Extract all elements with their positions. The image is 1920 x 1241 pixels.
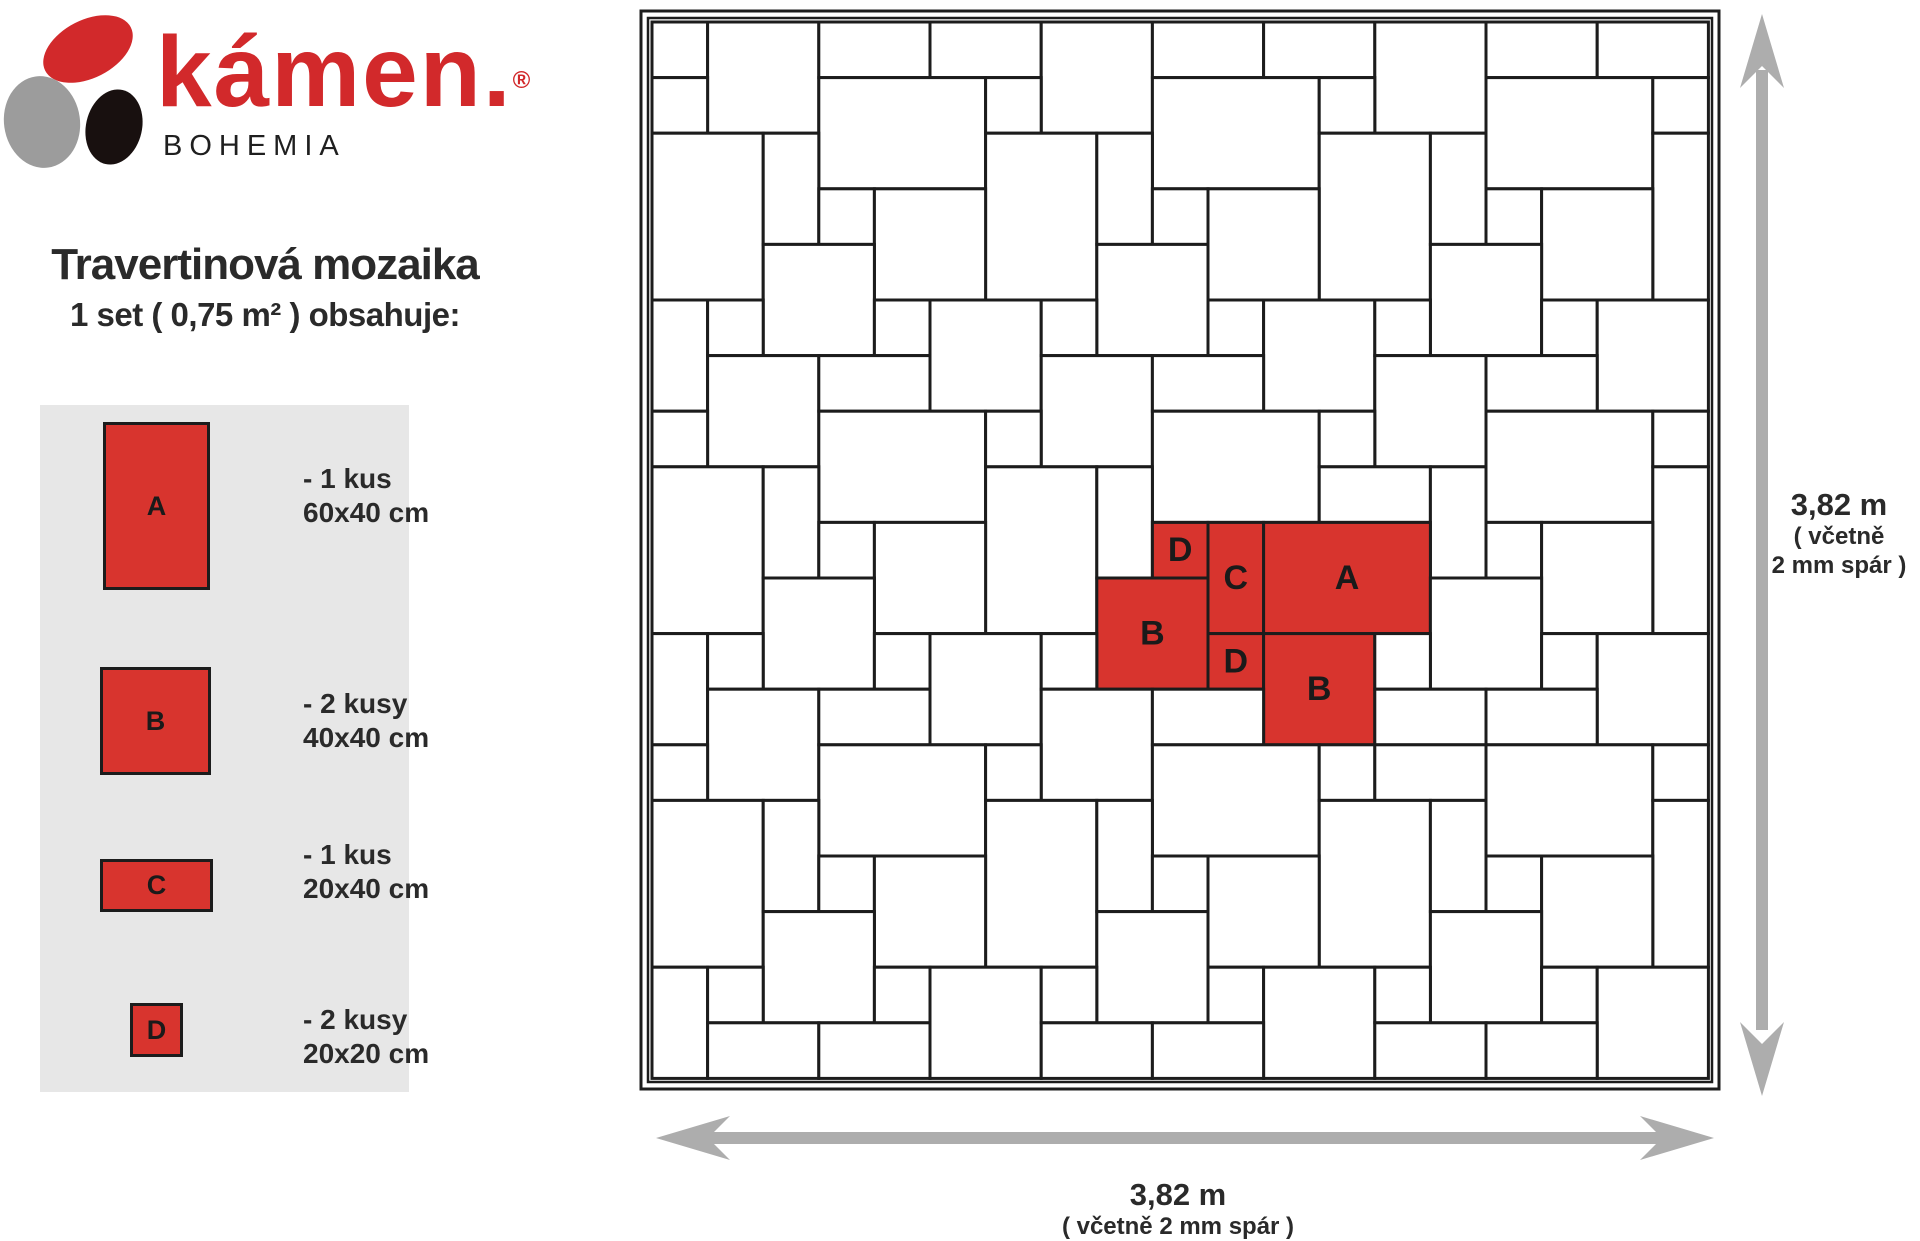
mosaic-tile [874, 634, 930, 690]
mosaic-tile [1542, 634, 1598, 690]
mosaic-tile [1486, 522, 1542, 578]
bottom-dimension-note: ( včetně 2 mm spár ) [978, 1212, 1378, 1241]
mosaic-tile [763, 912, 874, 1023]
mosaic-tile [1041, 689, 1152, 800]
horizontal-dimension-arrow [656, 1116, 1714, 1160]
mosaic-tile [652, 300, 708, 411]
mosaic-tile [819, 522, 875, 578]
legend-tile-d: D [130, 1003, 183, 1057]
legend-tile-c: C [100, 859, 213, 912]
logo-wordmark: kámen.® [156, 22, 530, 131]
logo-subbrand: BOHEMIA [163, 130, 346, 163]
mosaic-tile [1486, 745, 1653, 856]
mosaic-tile [874, 967, 930, 1023]
mosaic-tile [819, 356, 930, 412]
mosaic-tile [652, 78, 708, 134]
mosaic-tile [652, 133, 763, 300]
mosaic-tile [1486, 1023, 1597, 1079]
mosaic-tile [1041, 300, 1097, 356]
mosaic-tile [1653, 411, 1709, 467]
legend-item-d-qty: - 2 kusy [303, 1003, 429, 1037]
mosaic-tile [819, 1023, 930, 1079]
mosaic-tile [652, 411, 708, 467]
mosaic-tile [1542, 189, 1653, 300]
mosaic-tile [708, 634, 764, 690]
legend-item-b-qty: - 2 kusy [303, 687, 429, 721]
mosaic-tile [763, 800, 819, 911]
mosaic-tile [1152, 356, 1263, 412]
mosaic-tile [1653, 78, 1709, 134]
mosaic-tile-label: B [1307, 670, 1332, 708]
mosaic-tile [819, 78, 986, 189]
mosaic-tile-label: D [1224, 642, 1249, 680]
mosaic-tile [1375, 1023, 1486, 1079]
legend-tile-b: B [100, 667, 211, 775]
right-dimension-value: 3,82 m [1759, 488, 1919, 522]
mosaic-tile [819, 689, 930, 745]
logo-stones [0, 1, 150, 172]
mosaic-tile [652, 467, 763, 634]
mosaic-tile [1430, 244, 1541, 355]
mosaic-tile [1486, 411, 1653, 522]
mosaic-tile [1597, 967, 1708, 1078]
right-dimension-label: 3,82 m ( včetně 2 mm spár ) [1759, 488, 1919, 580]
mosaic-tile [763, 244, 874, 355]
mosaic-tile [763, 467, 819, 578]
mosaic-tile [1152, 22, 1263, 78]
mosaic-tile [1319, 745, 1375, 801]
right-dimension-note-2: 2 mm spár ) [1759, 551, 1919, 580]
mosaic-tile [1486, 78, 1653, 189]
registered-trademark-icon: ® [513, 67, 531, 94]
mosaic-tile [1097, 244, 1208, 355]
mosaic-tile [1041, 634, 1097, 690]
mosaic-tile [652, 634, 708, 745]
mosaic-tile [1486, 189, 1542, 245]
mosaic-tile [874, 522, 985, 633]
mosaic-tile [1041, 356, 1152, 467]
mosaic-tile [1319, 133, 1430, 300]
mosaic-tile [1097, 912, 1208, 1023]
mosaic-tile [1264, 300, 1375, 411]
legend-item-b-size: 40x40 cm [303, 721, 429, 755]
mosaic-tile [986, 78, 1042, 134]
mosaic-tile [1430, 467, 1486, 578]
mosaic-tile [1208, 967, 1264, 1023]
mosaic-tile-label: B [1140, 615, 1165, 653]
page-subtitle: 1 set ( 0,75 m² ) obsahuje: [10, 296, 520, 334]
legend-tile-a-label: A [147, 491, 167, 522]
mosaic-tile [819, 856, 875, 912]
mosaic-tile [1597, 22, 1708, 78]
mosaic-tile [1653, 745, 1709, 801]
mosaic-tile [930, 967, 1041, 1078]
mosaic-tile [874, 300, 930, 356]
logo-stone-black-icon [78, 84, 150, 171]
mosaic-tile [652, 800, 763, 967]
mosaic-tile [1430, 912, 1541, 1023]
mosaic-tile [763, 578, 874, 689]
mosaic-tile [1152, 856, 1208, 912]
mosaic-tile [652, 967, 708, 1078]
bottom-dimension-value: 3,82 m [978, 1178, 1378, 1212]
logo-stone-gray-icon [0, 71, 86, 173]
mosaic-tile [1208, 189, 1319, 300]
mosaic-tile [1041, 1023, 1152, 1079]
mosaic-tile [874, 189, 985, 300]
mosaic-tile [986, 467, 1097, 634]
mosaic-tile [1542, 967, 1598, 1023]
legend-item-d-text: - 2 kusy 20x20 cm [303, 1003, 429, 1071]
mosaic-tile [1375, 300, 1431, 356]
mosaic-tile [819, 22, 930, 78]
mosaic-tile [1152, 411, 1319, 522]
mosaic-tile [1430, 800, 1486, 911]
mosaic-tile [763, 133, 819, 244]
mosaic-tile [1097, 467, 1153, 578]
legend-item-c-size: 20x40 cm [303, 872, 429, 906]
mosaic-tile [1653, 800, 1709, 967]
mosaic-tile [1097, 133, 1153, 244]
mosaic-tile [1542, 300, 1598, 356]
mosaic-tile [708, 356, 819, 467]
mosaic-tile [1152, 189, 1208, 245]
mosaic-tile [1375, 745, 1486, 801]
legend-tile-c-label: C [147, 870, 167, 901]
mosaic-tile [930, 300, 1041, 411]
mosaic-tile [1152, 689, 1263, 745]
mosaic-tile-label: C [1224, 559, 1249, 597]
mosaic-tile [1486, 689, 1597, 745]
mosaic-tile [986, 411, 1042, 467]
mosaic-tile [819, 411, 986, 522]
mosaic-tile [708, 300, 764, 356]
legend-item-a-text: - 1 kus 60x40 cm [303, 462, 429, 530]
legend-tile-a: A [103, 422, 210, 590]
mosaic-tile [1542, 522, 1653, 633]
mosaic-tile [1597, 634, 1708, 745]
mosaic-tile [1097, 800, 1153, 911]
mosaic-tile [819, 745, 986, 856]
mosaic-tile [1152, 78, 1319, 189]
mosaic-tile [708, 689, 819, 800]
mosaic-tile [1486, 356, 1597, 412]
mosaic-tile [1319, 78, 1375, 134]
mosaic-tile [1430, 578, 1541, 689]
mosaic-tile [1375, 967, 1431, 1023]
legend-tile-b-label: B [146, 706, 166, 737]
mosaic-tile [1041, 22, 1152, 133]
bottom-dimension-label: 3,82 m ( včetně 2 mm spár ) [978, 1178, 1378, 1241]
right-dimension-note-1: ( včetně [1759, 522, 1919, 551]
mosaic-tile [1653, 133, 1709, 300]
mosaic-tile [819, 189, 875, 245]
legend-item-c-text: - 1 kus 20x40 cm [303, 838, 429, 906]
mosaic-tile [1264, 967, 1375, 1078]
mosaic-tile [708, 1023, 819, 1079]
mosaic-tile [986, 133, 1097, 300]
legend-item-a-qty: - 1 kus [303, 462, 429, 496]
mosaic-tile [930, 634, 1041, 745]
mosaic-tile [986, 800, 1097, 967]
mosaic-tile [1041, 967, 1097, 1023]
mosaic-tile [1208, 300, 1264, 356]
legend-item-c-qty: - 1 kus [303, 838, 429, 872]
mosaic-tile [1486, 856, 1542, 912]
mosaic-tile [1542, 856, 1653, 967]
mosaic-tile [1152, 1023, 1263, 1079]
mosaic-tile [708, 22, 819, 133]
mosaic-tile [1319, 411, 1375, 467]
mosaic-tile [1375, 22, 1486, 133]
logo-brand-text: kámen. [156, 16, 513, 128]
mosaic-tile [1264, 22, 1375, 78]
mosaic-tile [930, 22, 1041, 78]
mosaic-tile [1597, 300, 1708, 411]
mosaic-tile [652, 22, 708, 78]
mosaic-tile [1430, 133, 1486, 244]
mosaic-tile [1375, 689, 1486, 745]
mosaic-tile [986, 745, 1042, 801]
mosaic-tile [1653, 467, 1709, 634]
mosaic-tile-label: A [1335, 559, 1360, 597]
page-title: Travertinová mozaika [10, 240, 520, 290]
legend-item-b-text: - 2 kusy 40x40 cm [303, 687, 429, 755]
mosaic-tile [1375, 634, 1431, 690]
mosaic-tile [874, 856, 985, 967]
legend-item-a-size: 60x40 cm [303, 496, 429, 530]
mosaic-tile-label: D [1168, 531, 1193, 569]
mosaic-tile [1152, 745, 1319, 856]
mosaic-tile [1319, 467, 1430, 523]
mosaic-tile [1208, 856, 1319, 967]
mosaic-tile [652, 745, 708, 801]
mosaic-tile [1319, 800, 1430, 967]
legend-tile-d-label: D [147, 1015, 167, 1046]
legend-item-d-size: 20x20 cm [303, 1037, 429, 1071]
page: { "logo": { "brand": "kámen.", "register… [0, 0, 1920, 1240]
mosaic-tile [1486, 22, 1597, 78]
mosaic-tile [1375, 356, 1486, 467]
mosaic-tile [708, 967, 764, 1023]
legend-box: A - 1 kus 60x40 cm B - 2 kusy 40x40 cm C… [40, 405, 409, 1092]
